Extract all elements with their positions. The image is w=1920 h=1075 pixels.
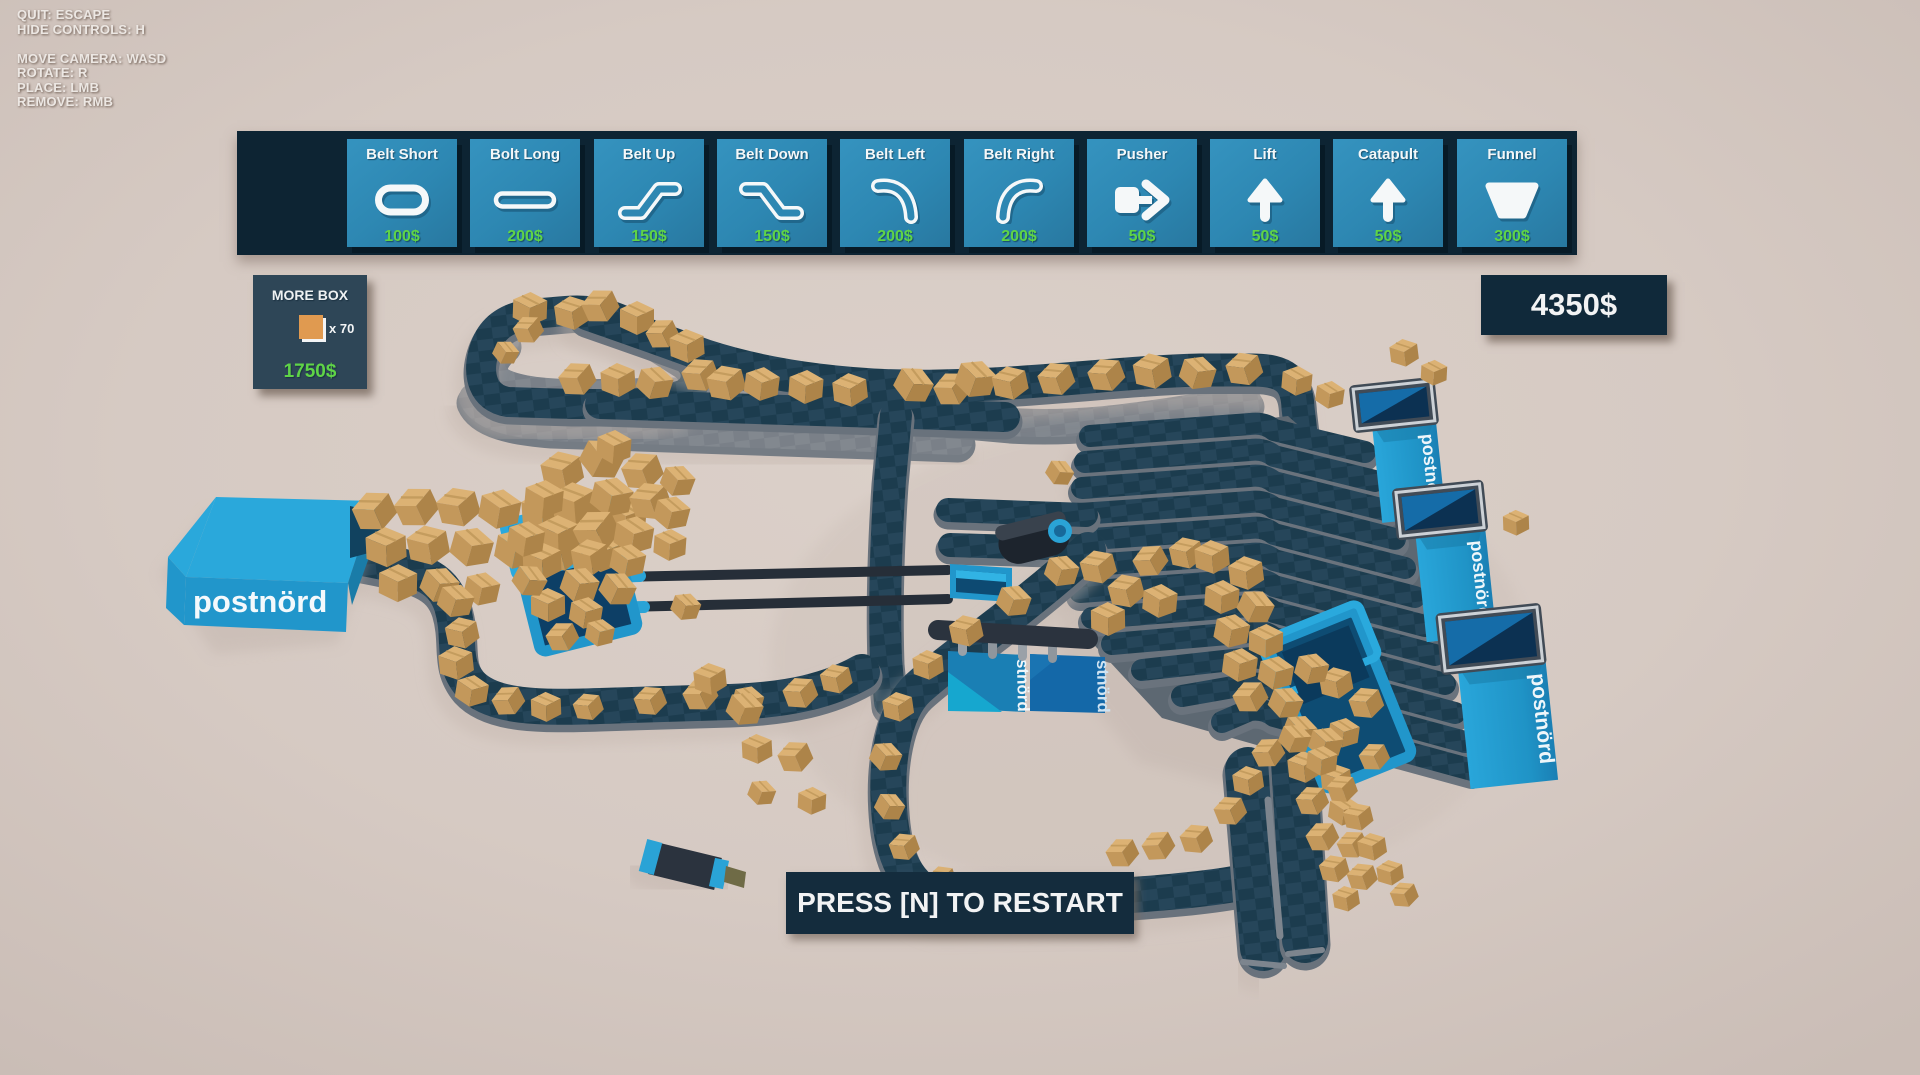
svg-text:postnörd: postnörd	[193, 584, 327, 619]
svg-text:stnörd: stnörd	[1013, 659, 1033, 712]
svg-text:stnörd: stnörd	[1093, 660, 1113, 713]
